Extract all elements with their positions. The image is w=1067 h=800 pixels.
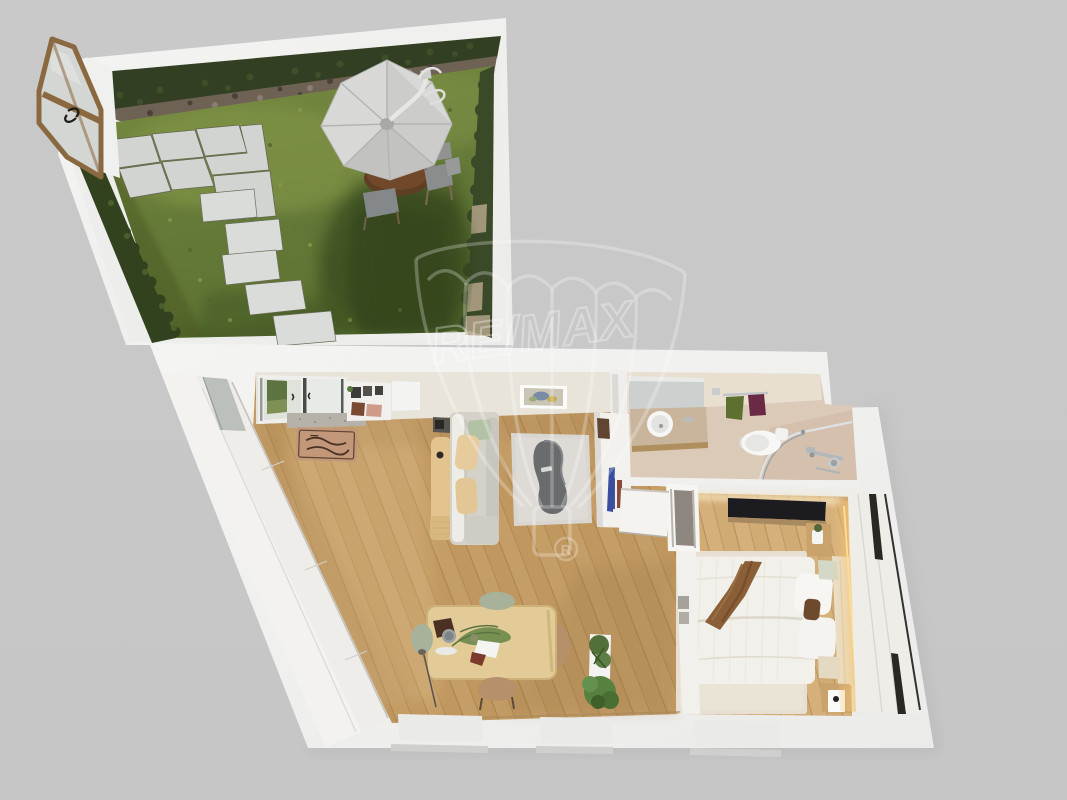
svg-text:R: R bbox=[561, 542, 572, 559]
